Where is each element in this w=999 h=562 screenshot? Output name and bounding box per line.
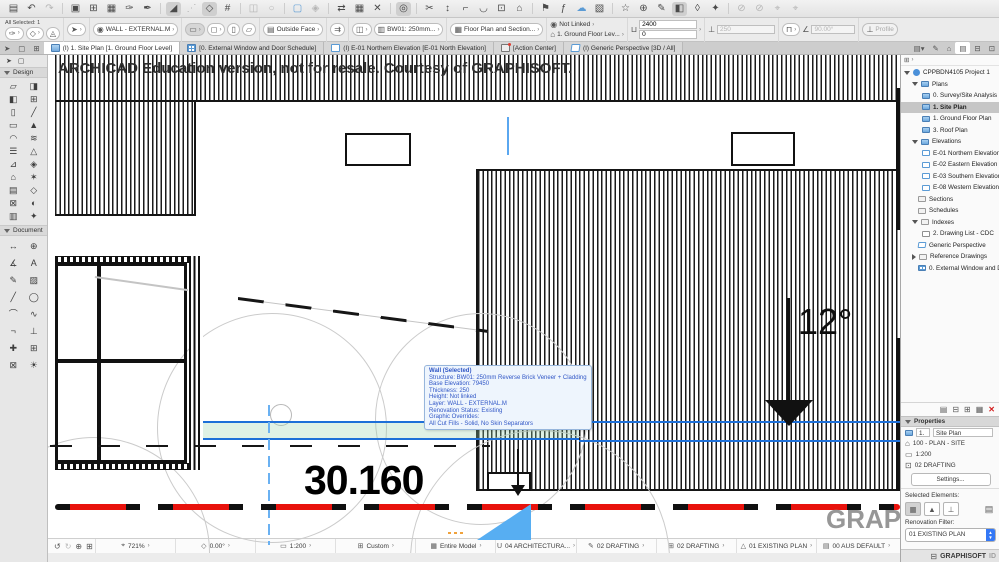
renovation-filter-dropdown[interactable]: 01 EXISTING PLAN ▲▼ (905, 528, 996, 542)
edge-wall-bar (896, 338, 900, 491)
opening-tool[interactable]: ◇ (30, 184, 37, 197)
tree-item-sections[interactable]: Sections (901, 194, 999, 206)
layout-ref-icon: ⌂ (905, 439, 910, 448)
eye-icon: ◉ (97, 25, 104, 34)
mesh-tool[interactable]: △ (30, 145, 37, 158)
element-folder-icon[interactable]: ▤ (982, 503, 996, 515)
drawing-canvas[interactable]: ARCHICAD Education version, not for resa… (48, 55, 900, 553)
properties-header[interactable]: Properties (901, 416, 999, 427)
hatched-wall-left[interactable] (55, 102, 196, 216)
settings-transfer-button[interactable]: ✑› (5, 27, 24, 40)
selected-wall-edge-top (579, 421, 900, 423)
home-icon[interactable]: ⌂ (512, 2, 527, 16)
guide-dashed-blue (268, 405, 270, 545)
elevation-tool[interactable]: ⊥ (30, 323, 38, 340)
tab-label: [Action Center] (513, 45, 556, 52)
anchor-icon: ⊥ (708, 25, 715, 34)
equipment-tool[interactable]: ▤ (9, 184, 18, 197)
toolbox-document-header[interactable]: Document (0, 225, 47, 236)
wall-direction-button[interactable]: ⊓› (782, 23, 800, 36)
tooltip-line: Base Elevation: 79450 (429, 381, 587, 388)
pickup-icon: ✑ (9, 29, 16, 38)
curtain-wall-tool[interactable]: ⊞ (30, 93, 38, 106)
reference-line-value: Outside Face (277, 26, 316, 33)
toolbox: ➤ ▢ Design ▱ ◨ ◧ ⊞ ▯ ╱ ▭ ▲ ◠ ≋ ☰ △ ⊿ ◈ ⌂… (0, 55, 48, 562)
import-icon[interactable]: ⊞ (964, 405, 971, 414)
lock-icon[interactable]: ◈ (308, 2, 323, 16)
camera-tool[interactable]: ☀ (30, 357, 38, 374)
stretch-icon[interactable]: ↕ (440, 2, 455, 16)
navigator-mode-icon[interactable]: ⊞ (904, 56, 909, 64)
polygon-wall-icon: ▱ (246, 25, 252, 34)
top-link-icon: ◉ (550, 20, 557, 29)
geometry-trapezoid-button[interactable]: ▯ (227, 23, 239, 36)
slope-arrow-head (765, 400, 813, 426)
element-info-icon[interactable]: ⊞ (86, 2, 101, 16)
markup-icon[interactable]: ✎ (654, 2, 669, 16)
layout-view-icon[interactable]: ⊡ (985, 42, 999, 54)
project-tree: CPPBDN4105 Project 1 Plans 0. Survey/Sit… (901, 66, 999, 274)
settings-button[interactable]: Settings... (911, 473, 991, 486)
fit-window-icon[interactable]: ⊡ (494, 2, 509, 16)
tooltip-line: Layer: WALL - EXTERNAL.M (429, 401, 587, 408)
education-watermark: ARCHICAD Education version, not for resa… (58, 60, 572, 77)
split-icon[interactable]: ✂ (422, 2, 437, 16)
folder-icon (918, 196, 926, 202)
cursor-icon: ➤ (71, 25, 78, 34)
brand-suffix: ID (989, 553, 996, 560)
wall-base-field[interactable] (639, 30, 697, 39)
stack-view-icon[interactable]: ⊟ (970, 42, 984, 54)
scale-icon: ▭ (905, 450, 913, 459)
wall-icon: ◫ (356, 25, 364, 34)
brand-name: GRAPHISOFT (940, 553, 986, 560)
fill-tool[interactable]: ▨ (29, 272, 38, 289)
interior-elevation-tool[interactable]: ✚ (9, 340, 17, 357)
toolbar-separator (284, 3, 285, 14)
glazing-frame[interactable] (55, 263, 187, 463)
folder-icon (921, 219, 929, 225)
tree-item-reference-drawings[interactable]: Reference Drawings (901, 251, 999, 263)
light-tool[interactable]: ◐ (31, 197, 36, 210)
tab-window-door-schedule[interactable]: [0. External Window and Door Schedule] (180, 42, 324, 54)
toolbar-separator (328, 3, 329, 14)
scheme-icon[interactable]: ✦ (708, 2, 723, 16)
slab-tool[interactable]: ▭ (9, 119, 18, 132)
circle-tool[interactable]: ◯ (29, 289, 39, 306)
favorites-star-icon[interactable]: ☆ (618, 2, 633, 16)
tooltip-line: All Cut Fills - Solid, No Skin Separator… (429, 421, 587, 428)
object-tool[interactable]: ⌂ (11, 171, 16, 184)
inject-parameters-icon[interactable]: ✒ (140, 2, 155, 16)
thickness-group: ⊥ (705, 18, 779, 42)
swap-icon[interactable]: ⇄ (334, 2, 349, 16)
properties-section: ▤ ⊟ ⊞ ▦ ✕ Properties 1. Site Plan ⌂100 -… (901, 402, 999, 543)
pickup-parameters-icon[interactable]: ✑ (122, 2, 137, 16)
flip-button[interactable]: ⇉ (330, 23, 345, 36)
schedule-icon (918, 265, 926, 271)
new-tab-icon[interactable]: ▤▾ (910, 42, 929, 54)
roof-tool[interactable]: ▲ (29, 119, 38, 132)
marquee-tool-icon[interactable]: ▢ (14, 42, 29, 54)
window-tool[interactable]: ◧ (9, 93, 18, 106)
disclosure-triangle-icon (4, 71, 10, 75)
archicad-window: ▤ ↶ ↷ ▣ ⊞ ▦ ✑ ✒ ◢ ⋰ ◇ # ◫ ○ ▢ ◈ ⇄ ▦ ✕ ◎ … (0, 0, 999, 562)
snap-guides-icon[interactable]: ◇ (202, 2, 217, 16)
favorites-icon[interactable]: ▦ (104, 2, 119, 16)
tree-item-survey[interactable]: 0. Survey/Site Analysis (901, 90, 999, 102)
clone-folder-icon[interactable]: ▤ (940, 405, 948, 414)
link-icon[interactable]: ⊘ (734, 2, 749, 16)
home-story-icon: ⌂ (550, 30, 555, 39)
curve-edge-icon[interactable]: ◡ (476, 2, 491, 16)
tooltip-title: Wall (Selected) (429, 368, 587, 375)
fillet-icon[interactable]: ⌐ (458, 2, 473, 16)
notification-dot (508, 43, 511, 46)
tree-item-site-plan[interactable]: 1. Site Plan (901, 102, 999, 114)
layer-value: WALL - EXTERNAL.M (106, 26, 171, 33)
mullion-vertical (97, 263, 101, 463)
stair-tool[interactable]: ≋ (30, 132, 38, 145)
dashed-reference-line (50, 445, 490, 447)
item-id-field[interactable]: 1. (916, 428, 930, 437)
eraser-icon[interactable]: ◫ (246, 2, 261, 16)
tree-item-plans[interactable]: Plans (901, 79, 999, 91)
item-icon (905, 430, 913, 436)
structure-group: ◫› ▥BW01: 250mm...› (349, 18, 448, 42)
toolbox-design-header[interactable]: Design (0, 67, 47, 78)
panel-toggle-icon[interactable]: ◧ (672, 2, 687, 16)
arrow-tool-button[interactable]: ➤› (67, 23, 86, 36)
panel-tool[interactable]: ▥ (9, 210, 18, 223)
layer-combination-control[interactable]: ⊞Custom› (335, 539, 415, 553)
plan-icon (922, 127, 930, 133)
close-icon[interactable]: ✕ (370, 2, 385, 16)
section-tool[interactable]: ¬ (11, 323, 16, 340)
geometry-method-group: ▭› ◻› ▯ ▱ (182, 18, 260, 42)
navigator-actions: ▤ ⊟ ⊞ ▦ ✕ (901, 402, 999, 416)
toolbar-separator (532, 3, 533, 14)
folder-icon (918, 208, 926, 214)
home-story-value[interactable]: 1. Ground Floor Lev... (557, 31, 620, 38)
pan-view-icon[interactable]: ⌂ (943, 42, 956, 54)
navigator-panel: ⊞ › CPPBDN4105 Project 1 Plans 0. Survey… (900, 55, 999, 562)
flag-icon[interactable]: ⚑ (538, 2, 553, 16)
project-icon (913, 69, 920, 76)
elevation-icon (922, 185, 930, 191)
layout-icon (922, 231, 930, 237)
guide-segment-icon[interactable]: ⋰ (184, 2, 199, 16)
delete-icon[interactable]: ✕ (988, 405, 995, 414)
wall-height-icon: ⊔ (631, 25, 637, 34)
tab-generic-perspective[interactable]: (I) Generic Perspective [3D / All] (564, 42, 683, 54)
marker-arrow-head (511, 485, 525, 496)
save-icon[interactable]: ▤ (6, 2, 21, 16)
door-tool[interactable]: ◨ (29, 80, 38, 93)
extra-tool[interactable]: ✦ (30, 210, 38, 223)
snap-tick-orange (448, 532, 466, 534)
element-info-tooltip: Wall (Selected) Structure: BW01: 250mm R… (424, 365, 592, 430)
tooltip-line: Height: Not linked (429, 394, 587, 401)
disclosure-triangle-icon (4, 229, 10, 233)
tab-site-plan[interactable]: (I) 1. Site Plan [1. Ground Floor Level] (44, 42, 180, 54)
profile-label: Profile (875, 26, 893, 33)
toolbar-separator (62, 3, 63, 14)
tooltip-line: Renovation Status: Existing (429, 408, 587, 415)
bucket-icon: ◬ (50, 29, 56, 38)
renovation-filter-control[interactable]: △01 EXISTING PLAN› (736, 539, 816, 553)
tree-item-generic-perspective[interactable]: Generic Perspective (901, 240, 999, 252)
disclosure-triangle-icon (905, 420, 911, 424)
brand-bar: ⊟ GRAPHISOFT ID (901, 549, 999, 562)
ref-face-icon: ▤ (267, 25, 275, 34)
column-tool[interactable]: ▯ (11, 106, 16, 119)
tree-item-ground-floor-plan[interactable]: 1. Ground Floor Plan (901, 113, 999, 125)
plan-rectangle[interactable] (345, 133, 411, 166)
toolbar-separator (240, 3, 241, 14)
layout-ref-value: 100 - PLAN - SITE (913, 440, 965, 447)
pen-set-value: 02 DRAFTING (915, 462, 956, 469)
workspace-control[interactable]: ▤00 AUS DEFAULT› (816, 539, 896, 553)
undo-icon[interactable]: ↶ (24, 2, 39, 16)
thickness-field (717, 25, 775, 34)
schedule-icon[interactable]: ▦ (352, 2, 367, 16)
display-icon: ▦ (454, 25, 462, 34)
insulated-wall-bottom[interactable] (55, 463, 189, 470)
tab-label: (I) Generic Perspective [3D / All] (583, 45, 675, 52)
folder-view-icon[interactable]: ▤ (955, 42, 970, 54)
selection-info-group: All Selected: 1 ✑› ◇› ◬ (2, 18, 64, 42)
spline-tool[interactable]: ∿ (30, 306, 38, 323)
elevation-icon (922, 162, 930, 168)
find-select-icon[interactable]: ▣ (68, 2, 83, 16)
dimension-text[interactable]: 30.160 (304, 457, 423, 504)
marquee-tool-button[interactable]: ▢ (18, 57, 25, 65)
toolbar-separator (416, 3, 417, 14)
plan-icon (922, 93, 930, 99)
angle-group: ⊓› ∠ (779, 18, 859, 42)
tab-label: (I) 1. Site Plan [1. Ground Floor Level] (63, 45, 172, 52)
schedule-tab-icon (187, 44, 196, 52)
dimension-tool[interactable]: ↔ (9, 238, 18, 255)
renovation-filter-value: 01 EXISTING PLAN (906, 529, 986, 541)
tooltip-line: Thickness: 250 (429, 388, 587, 395)
pin-alt-icon[interactable]: ⌖ (788, 2, 803, 16)
edit-tab-icon[interactable]: ✎ (928, 42, 942, 54)
tab-action-center[interactable]: [Action Center] (494, 42, 564, 54)
story-link-group: ◉Not Linked› ⌂1. Ground Floor Lev...› (547, 18, 628, 42)
tree-item-drawing-list[interactable]: 2. Drawing List - CDC (901, 228, 999, 240)
composite-icon: ▥ (378, 25, 386, 34)
composite-dropdown[interactable]: ▥BW01: 250mm...› (374, 23, 444, 36)
threed-icon (918, 242, 927, 248)
snap-grid-icon[interactable]: # (220, 2, 235, 16)
top-link-value[interactable]: Not Linked (559, 21, 590, 28)
site-boundary-line[interactable] (55, 504, 900, 510)
perspective-tab-icon (570, 44, 580, 52)
toolbar-separator (160, 3, 161, 14)
snapshot-icon[interactable]: ▧ (592, 2, 607, 16)
function-icon[interactable]: ƒ (556, 2, 571, 16)
slant-angle-field (811, 25, 855, 34)
straight-wall-icon: ▭ (189, 25, 197, 34)
display-mode-dropdown[interactable]: ▦Floor Plan and Section...› (450, 23, 543, 36)
marquee-icon[interactable]: ▢ (290, 2, 305, 16)
flip-icon: ⇉ (334, 25, 341, 34)
elevation-icon (922, 150, 930, 156)
folder-icon (921, 81, 929, 87)
worksheet-tool[interactable]: ⊞ (30, 340, 38, 357)
tag-icon[interactable]: ◊ (690, 2, 705, 16)
plan-icon (922, 116, 930, 122)
curved-wall-icon: ◻ (211, 25, 218, 34)
plan-rectangle[interactable] (731, 132, 795, 166)
tree-item-window-door-schedule[interactable]: 0. External Window and D (901, 263, 999, 275)
plan-tab-icon (51, 44, 60, 52)
plan-icon (922, 104, 930, 110)
action-center-tab-icon (501, 44, 510, 52)
cloud-icon[interactable]: ☁ (574, 2, 589, 16)
direction-icon: ⊓ (786, 25, 792, 34)
tooltip-line: Structure: BW01: 250mm Reverse Brick Ven… (429, 375, 587, 382)
tree-item-e01[interactable]: E-01 Northern Elevation (901, 148, 999, 160)
folder-icon (919, 254, 927, 260)
display-mode-value: Floor Plan and Section... (464, 26, 535, 33)
trapezoid-wall-icon: ▯ (231, 25, 235, 34)
profile-icon: ⊥ (866, 25, 873, 34)
label-tool[interactable]: ✎ (9, 272, 17, 289)
wall-height-field[interactable] (639, 20, 697, 29)
tree-item-roof-plan[interactable]: 3. Roof Plan (901, 125, 999, 137)
railing-tool[interactable]: ☰ (9, 145, 17, 158)
geometry-polygon-button[interactable]: ▱ (242, 23, 256, 36)
reference-line-group: ▤Outside Face› (260, 18, 327, 42)
navigator-mini-toolbar: ⊞ › (901, 55, 999, 66)
publish-icon[interactable]: ⊕ (636, 2, 651, 16)
toolbar-separator (612, 3, 613, 14)
tree-item-indexes[interactable]: Indexes (901, 217, 999, 229)
reference-line-dropdown[interactable]: ▤Outside Face› (263, 23, 323, 36)
wall-tool[interactable]: ▱ (10, 80, 17, 93)
unlink-icon[interactable]: ⊘ (752, 2, 767, 16)
roof-override-button[interactable]: ▲ (924, 502, 940, 516)
arrow-tool-button[interactable]: ➤ (6, 57, 12, 65)
layer-group: ◉WALL - EXTERNAL.M› (90, 18, 183, 42)
tab-label: (I) E-01 Northern Elevation [E-01 North … (343, 45, 486, 52)
tree-item-elevations[interactable]: Elevations (901, 136, 999, 148)
wall-system-button[interactable]: ◫› (352, 23, 372, 36)
shell-tool[interactable]: ◠ (9, 132, 17, 145)
profile-group: ⊥Profile (859, 18, 900, 42)
profile-button: ⊥Profile (862, 23, 897, 36)
suspend-groups-icon[interactable]: ○ (264, 2, 279, 16)
line-tool[interactable]: ╱ (11, 289, 16, 306)
folder-icon (921, 139, 929, 145)
export-icon[interactable]: ▦ (976, 405, 984, 414)
beam-tool[interactable]: ╱ (31, 106, 36, 119)
layer-dropdown[interactable]: ◉WALL - EXTERNAL.M› (93, 23, 179, 36)
morph-tool[interactable]: ◈ (30, 158, 37, 171)
flip-group: ⇉ (327, 18, 349, 42)
selected-elements-buttons: ▦ ▲ ⊥ ▤ (901, 500, 999, 518)
selected-wall-edge-bottom (579, 440, 900, 442)
pin-icon[interactable]: ⌖ (770, 2, 785, 16)
tab-label: [0. External Window and Door Schedule] (199, 45, 316, 52)
document-tools-grid: ↔ ⊕ ∡ A ✎ ▨ ╱ ◯ ⌒ ∿ ¬ ⊥ ✚ ⊞ ⊠ ☀ (0, 236, 47, 376)
teamwork-icon[interactable]: ⊟ (930, 552, 937, 561)
fill-override-button[interactable]: ▦ (905, 502, 921, 516)
tab-northern-elevation[interactable]: (I) E-01 Northern Elevation [E-01 North … (324, 42, 494, 54)
wall-edge-lines[interactable] (189, 256, 203, 470)
selection-count-label: All Selected: 1 (5, 20, 60, 26)
diamond-icon: ◇ (30, 29, 36, 38)
design-tools-grid: ▱ ◨ ◧ ⊞ ▯ ╱ ▭ ▲ ◠ ≋ ☰ △ ⊿ ◈ ⌂ ✶ ▤ ◇ ⊠ ◐ … (0, 78, 47, 225)
pen-set-icon: ⊡ (905, 461, 912, 470)
geometry-curved-button[interactable]: ◻› (207, 23, 226, 36)
tool-options-bar: All Selected: 1 ✑› ◇› ◬ ➤› ◉WALL - EXTER… (0, 18, 999, 42)
edge-wall-bar (896, 88, 900, 230)
level-dimension-tool[interactable]: ⊕ (30, 238, 38, 255)
toolbar-separator (728, 3, 729, 14)
skylight-tool[interactable]: ⊠ (9, 197, 17, 210)
elevation-icon (922, 173, 930, 179)
guide-lines-icon[interactable]: ◢ (166, 2, 181, 16)
publish-set-icon[interactable]: ⊟ (952, 405, 959, 414)
renovation-filter-label: Renovation Filter: (905, 519, 954, 526)
lamp-tool[interactable]: ✶ (30, 171, 38, 184)
zone-tool[interactable]: ⊿ (9, 158, 17, 171)
elevation-tab-icon (331, 44, 340, 52)
orbit-icon[interactable]: ◎ (396, 2, 411, 16)
geometry-straight-button[interactable]: ▭› (185, 23, 205, 36)
marker-arrow-stem (517, 449, 519, 487)
profile-override-button[interactable]: ⊥ (943, 502, 959, 516)
tab-overview-icon[interactable]: ⊞ (29, 42, 43, 54)
mullion-horizontal (55, 359, 187, 363)
favorite-apply-button[interactable]: ◇› (26, 27, 44, 40)
tree-item-e02[interactable]: E-02 Eastern Elevation (901, 159, 999, 171)
stepper-icon: ▲▼ (986, 529, 995, 541)
tooltip-line: Graphic Overrides: (429, 414, 587, 421)
angle-dimension-tool[interactable]: ∡ (9, 255, 17, 272)
slant-angle-icon: ∠ (802, 25, 809, 34)
composite-value: BW01: 250mm... (387, 26, 435, 33)
selected-elements-label: Selected Elements: (905, 492, 959, 499)
tree-item-e03[interactable]: E-03 Southern Elevation (901, 171, 999, 183)
main-toolbar: ▤ ↶ ↷ ▣ ⊞ ▦ ✑ ✒ ◢ ⋰ ◇ # ◫ ○ ▢ ◈ ⇄ ▦ ✕ ◎ … (0, 0, 999, 18)
slope-label: 12° (798, 301, 852, 343)
tree-item-schedules[interactable]: Schedules (901, 205, 999, 217)
tab-bar: ➤ ▢ ⊞ (I) 1. Site Plan [1. Ground Floor … (0, 42, 999, 55)
toolbar-separator (390, 3, 391, 14)
tree-item-project-root[interactable]: CPPBDN4105 Project 1 (901, 67, 999, 79)
paint-bucket-button[interactable]: ◬ (46, 27, 60, 40)
arrow-tool-group: ➤› (64, 18, 90, 42)
scale-value: 1:200 (916, 451, 932, 458)
text-tool[interactable]: A (31, 255, 37, 272)
graphisoft-watermark: GRAPH (826, 504, 900, 535)
height-group: ⊔ › (628, 18, 705, 42)
item-name-field[interactable]: Site Plan (933, 428, 993, 437)
redo-icon[interactable]: ↷ (42, 2, 57, 16)
tree-item-e08[interactable]: E-08 Western Elevation (901, 182, 999, 194)
arrow-tool-icon[interactable]: ➤ (0, 42, 14, 54)
insulated-wall-top[interactable] (55, 256, 189, 263)
polyline-tool[interactable]: ⌒ (9, 306, 18, 323)
display-mode-group: ▦Floor Plan and Section...› (447, 18, 547, 42)
detail-tool[interactable]: ⊠ (9, 357, 17, 374)
slope-arrow-stem (787, 298, 790, 400)
